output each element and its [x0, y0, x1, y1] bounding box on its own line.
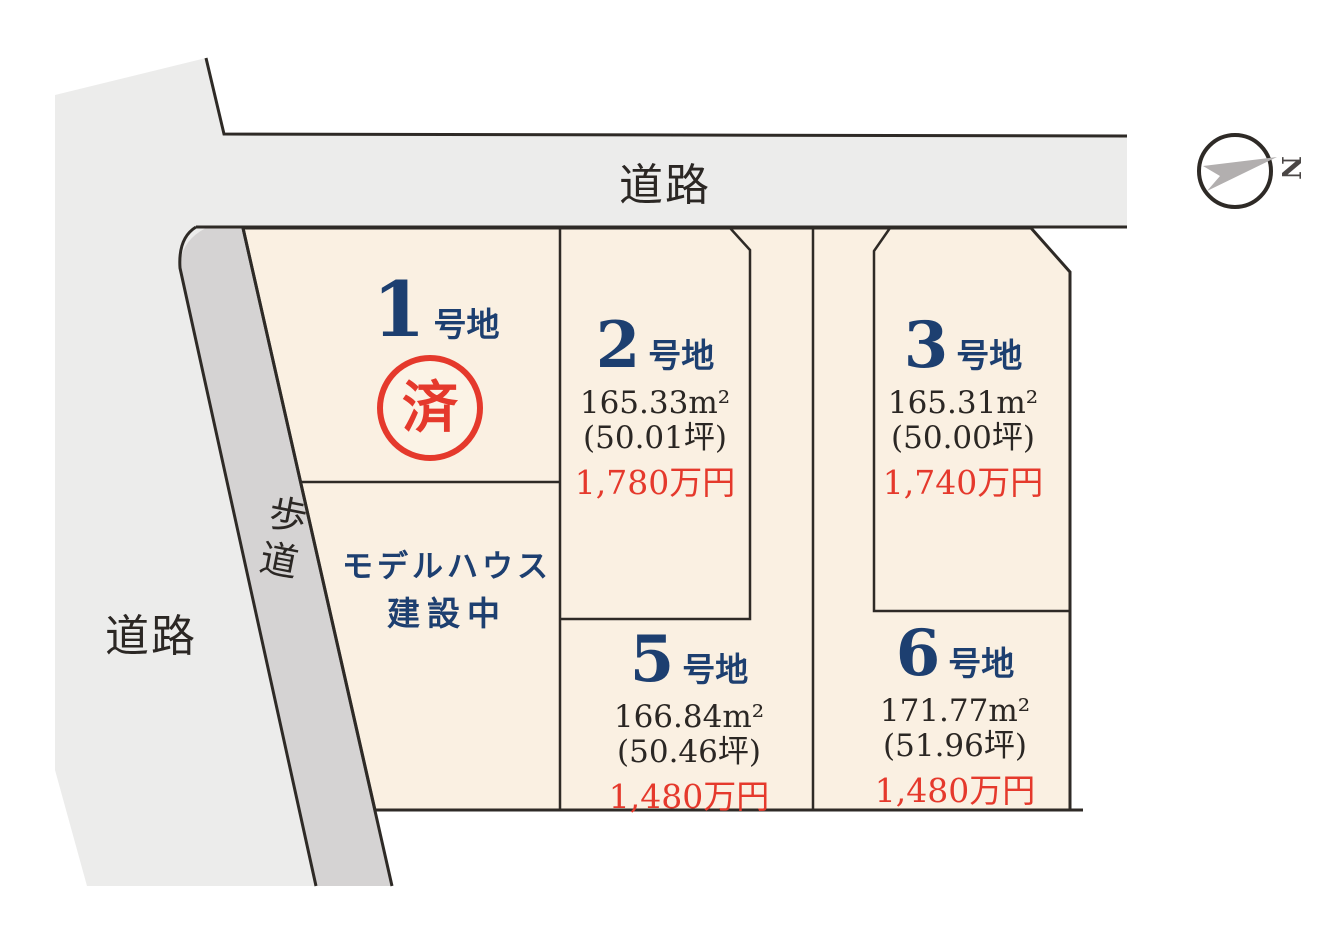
- model-house-line2: 建設中: [342, 597, 552, 630]
- lot1-number: 1: [373, 272, 426, 348]
- lot3-price: 1,740万円: [883, 466, 1043, 499]
- lot3-info: 3 号地 165.31m² (50.00坪) 1,740万円: [883, 314, 1043, 499]
- lot5-tsubo: (50.46坪): [609, 737, 769, 768]
- sold-stamp: 済: [377, 355, 483, 461]
- compass-letter: N: [1275, 156, 1305, 180]
- lot2-price: 1,780万円: [575, 466, 735, 499]
- lot5-number: 5: [630, 628, 675, 692]
- sold-stamp-text: 済: [402, 380, 458, 436]
- lot3-suffix: 号地: [956, 339, 1022, 372]
- lot6-price: 1,480万円: [875, 774, 1035, 807]
- lot2-number: 2: [596, 314, 641, 378]
- lot2-suffix: 号地: [648, 339, 714, 372]
- road-left-label: 道路: [105, 600, 197, 664]
- road-top-border: [206, 58, 1127, 136]
- lot5-info: 5 号地 166.84m² (50.46坪) 1,480万円: [609, 628, 769, 813]
- model-house-note: モデルハウス 建設中: [342, 552, 552, 630]
- model-house-line1: モデルハウス: [342, 552, 552, 583]
- lot6-area: 171.77m²: [875, 696, 1035, 727]
- lot3-number: 3: [904, 314, 949, 378]
- lot-map-canvas: N 道路 道路 歩道 1 号地 済 モデルハウス 建設中 2 号地 165.33…: [0, 0, 1336, 932]
- lot6-info: 6 号地 171.77m² (51.96坪) 1,480万円: [875, 622, 1035, 807]
- lot5-suffix: 号地: [682, 653, 748, 686]
- lot5-area: 166.84m²: [609, 702, 769, 733]
- lot6-tsubo: (51.96坪): [875, 731, 1035, 762]
- compass: N: [1199, 135, 1305, 207]
- lot3-tsubo: (50.00坪): [883, 423, 1043, 454]
- lot1-label: 1 号地: [373, 272, 500, 348]
- lot6-number: 6: [896, 622, 941, 686]
- lot3-area: 165.31m²: [883, 388, 1043, 419]
- lot6-suffix: 号地: [948, 647, 1014, 680]
- lot2-tsubo: (50.01坪): [575, 423, 735, 454]
- lot2-area: 165.33m²: [575, 388, 735, 419]
- lot5-price: 1,480万円: [609, 780, 769, 813]
- lot2-info: 2 号地 165.33m² (50.01坪) 1,780万円: [575, 314, 735, 499]
- road-top-label: 道路: [619, 149, 711, 213]
- lot1-suffix: 号地: [433, 308, 499, 341]
